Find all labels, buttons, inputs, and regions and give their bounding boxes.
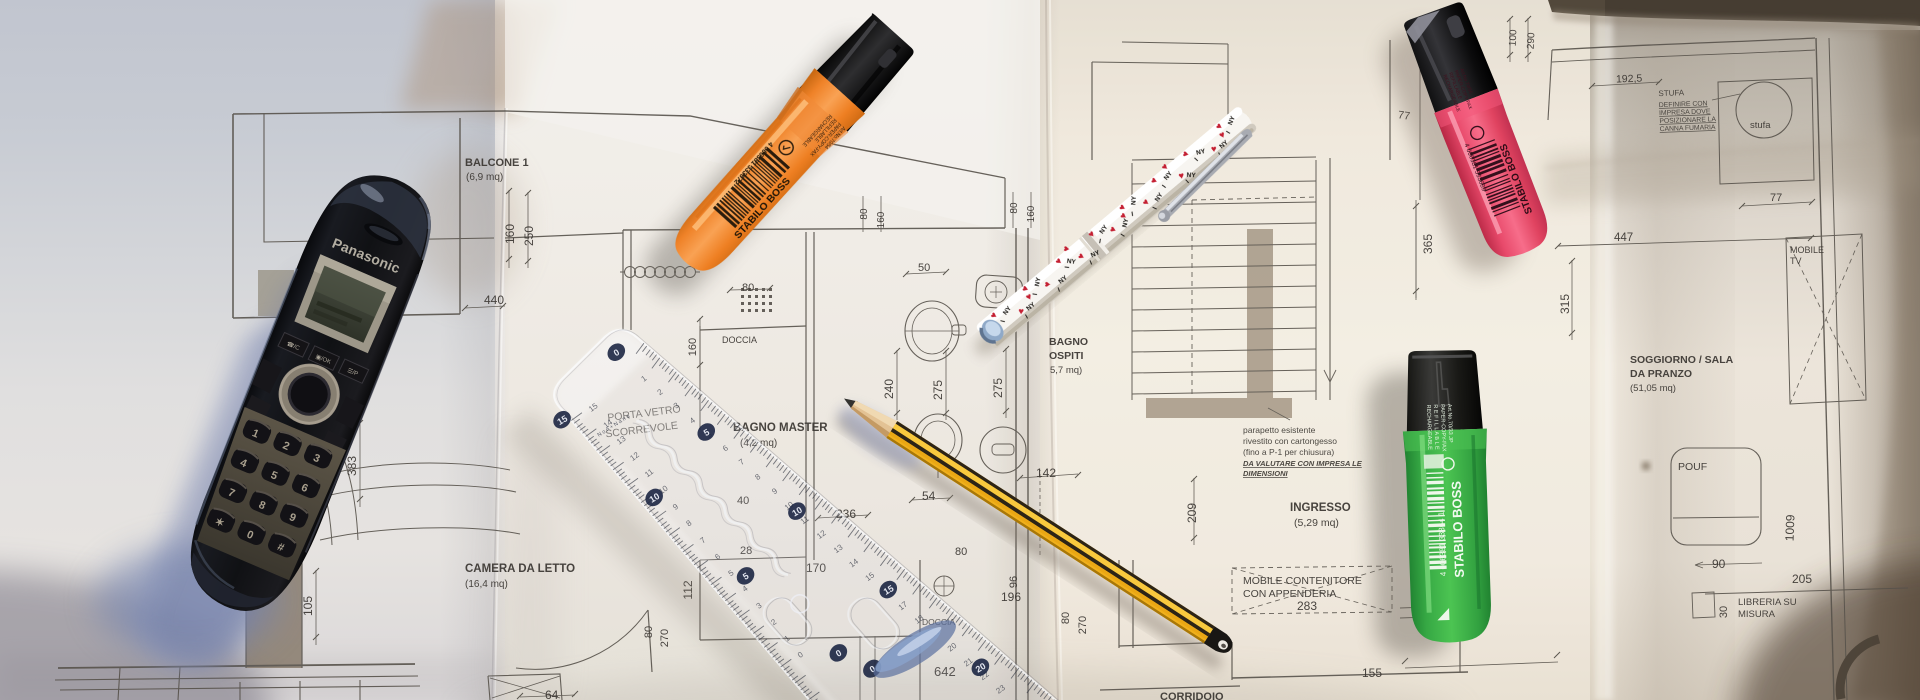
svg-text:365: 365 [1421, 234, 1435, 254]
svg-text:155: 155 [1362, 666, 1382, 680]
svg-text:CORRIDOIO: CORRIDOIO [1160, 691, 1224, 700]
svg-text:196: 196 [1001, 590, 1021, 604]
svg-text:447: 447 [1614, 232, 1633, 244]
svg-text:80: 80 [742, 282, 754, 294]
svg-text:MOBILE CONTENITORE: MOBILE CONTENITORE [1243, 575, 1362, 587]
svg-text:64: 64 [545, 688, 559, 700]
svg-text:54: 54 [922, 489, 936, 503]
svg-text:(51,05 mq): (51,05 mq) [1630, 383, 1676, 394]
svg-text:100: 100 [1508, 29, 1520, 47]
svg-text:OSPITI: OSPITI [1049, 350, 1084, 362]
svg-text:POUF: POUF [1678, 461, 1707, 473]
svg-text:INGRESSO: INGRESSO [1290, 502, 1351, 514]
svg-text:TV: TV [1790, 256, 1802, 266]
svg-text:315: 315 [1558, 294, 1572, 314]
svg-text:NY: NY [1066, 258, 1076, 266]
svg-text:275: 275 [931, 380, 945, 400]
svg-text:270: 270 [1077, 616, 1089, 634]
svg-text:♥: ♥ [1018, 306, 1024, 317]
svg-text:80: 80 [643, 626, 655, 638]
svg-text:383: 383 [345, 456, 359, 476]
svg-text:(16,4 mq): (16,4 mq) [465, 579, 508, 590]
svg-text:80: 80 [955, 546, 967, 558]
svg-text:50: 50 [918, 262, 930, 274]
svg-text:(fino a P-1 per chiusura): (fino a P-1 per chiusura) [1243, 447, 1334, 457]
svg-text:LIBRERIA SU: LIBRERIA SU [1738, 597, 1797, 608]
svg-text:DA VALUTARE CON IMPRESA LE: DA VALUTARE CON IMPRESA LE [1243, 459, 1363, 468]
svg-text:DIMENSIONI: DIMENSIONI [1243, 469, 1289, 478]
svg-text:283: 283 [1297, 599, 1317, 613]
svg-text:270: 270 [659, 629, 671, 647]
svg-text:160: 160 [687, 338, 699, 356]
svg-text:240: 240 [882, 379, 896, 399]
svg-text:290: 290 [1526, 32, 1538, 50]
svg-text:80: 80 [859, 208, 870, 220]
svg-text:♥: ♥ [1042, 281, 1053, 287]
svg-text:DOCCIA: DOCCIA [722, 335, 757, 345]
svg-text:205: 205 [1792, 572, 1812, 586]
svg-text:rivestito con cartongesso: rivestito con cartongesso [1243, 436, 1337, 446]
svg-text:stufa: stufa [1750, 120, 1771, 131]
svg-text:250: 250 [522, 226, 536, 246]
svg-text:275: 275 [991, 378, 1005, 398]
svg-text:142: 142 [1036, 466, 1056, 480]
svg-text:90: 90 [1712, 557, 1726, 571]
svg-text:1009: 1009 [1783, 514, 1798, 541]
svg-text:105: 105 [301, 596, 315, 616]
svg-text:5,7 mq): 5,7 mq) [1050, 365, 1082, 376]
svg-text:STUFA: STUFA [1658, 88, 1685, 98]
svg-text:80: 80 [1060, 612, 1072, 624]
svg-text:30: 30 [1718, 606, 1730, 618]
svg-text:(6,9 mq): (6,9 mq) [466, 172, 503, 183]
svg-text:NY: NY [1186, 172, 1196, 179]
svg-text:SOGGIORNO / SALA: SOGGIORNO / SALA [1630, 354, 1734, 366]
svg-text:209: 209 [1185, 503, 1199, 523]
svg-text:CON APPENDERIA: CON APPENDERIA [1243, 588, 1336, 600]
svg-text:CAMERA DA LETTO: CAMERA DA LETTO [465, 563, 575, 575]
svg-text:BALCONE 1: BALCONE 1 [465, 157, 529, 169]
svg-text:192,5: 192,5 [1616, 73, 1643, 86]
svg-text:96: 96 [1008, 576, 1020, 588]
svg-text:160: 160 [876, 211, 887, 228]
svg-text:BAGNO: BAGNO [1049, 336, 1088, 348]
svg-text:parapetto esistente: parapetto esistente [1243, 425, 1316, 435]
svg-text:160: 160 [503, 224, 517, 244]
svg-text:(5,29 mq): (5,29 mq) [1294, 517, 1339, 529]
svg-text:DA PRANZO: DA PRANZO [1630, 368, 1692, 380]
svg-text:440: 440 [484, 293, 504, 307]
svg-text:NY: NY [1130, 195, 1137, 205]
svg-text:77: 77 [1770, 192, 1782, 204]
svg-text:MOBILE: MOBILE [1790, 245, 1824, 255]
svg-text:MISURA: MISURA [1738, 609, 1776, 620]
svg-text:80: 80 [1009, 202, 1020, 214]
svg-text:160: 160 [1026, 205, 1037, 222]
